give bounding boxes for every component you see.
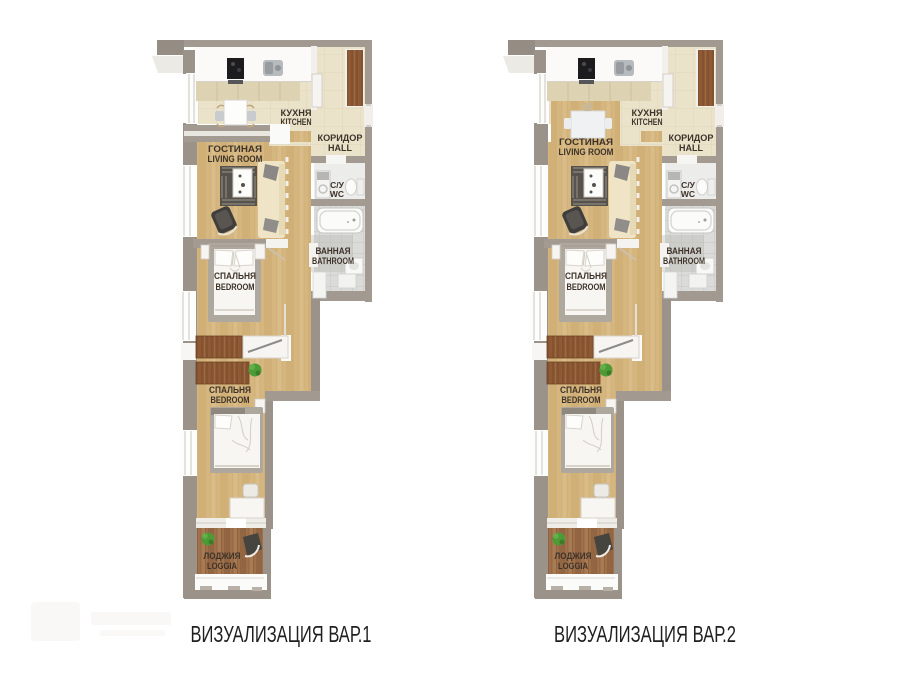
svg-text:ВИЗУАЛИЗАЦИЯ ВАР.1: ВИЗУАЛИЗАЦИЯ ВАР.1 bbox=[191, 621, 372, 647]
svg-text:ВИЗУАЛИЗАЦИЯ ВАР.2: ВИЗУАЛИЗАЦИЯ ВАР.2 bbox=[554, 621, 736, 647]
